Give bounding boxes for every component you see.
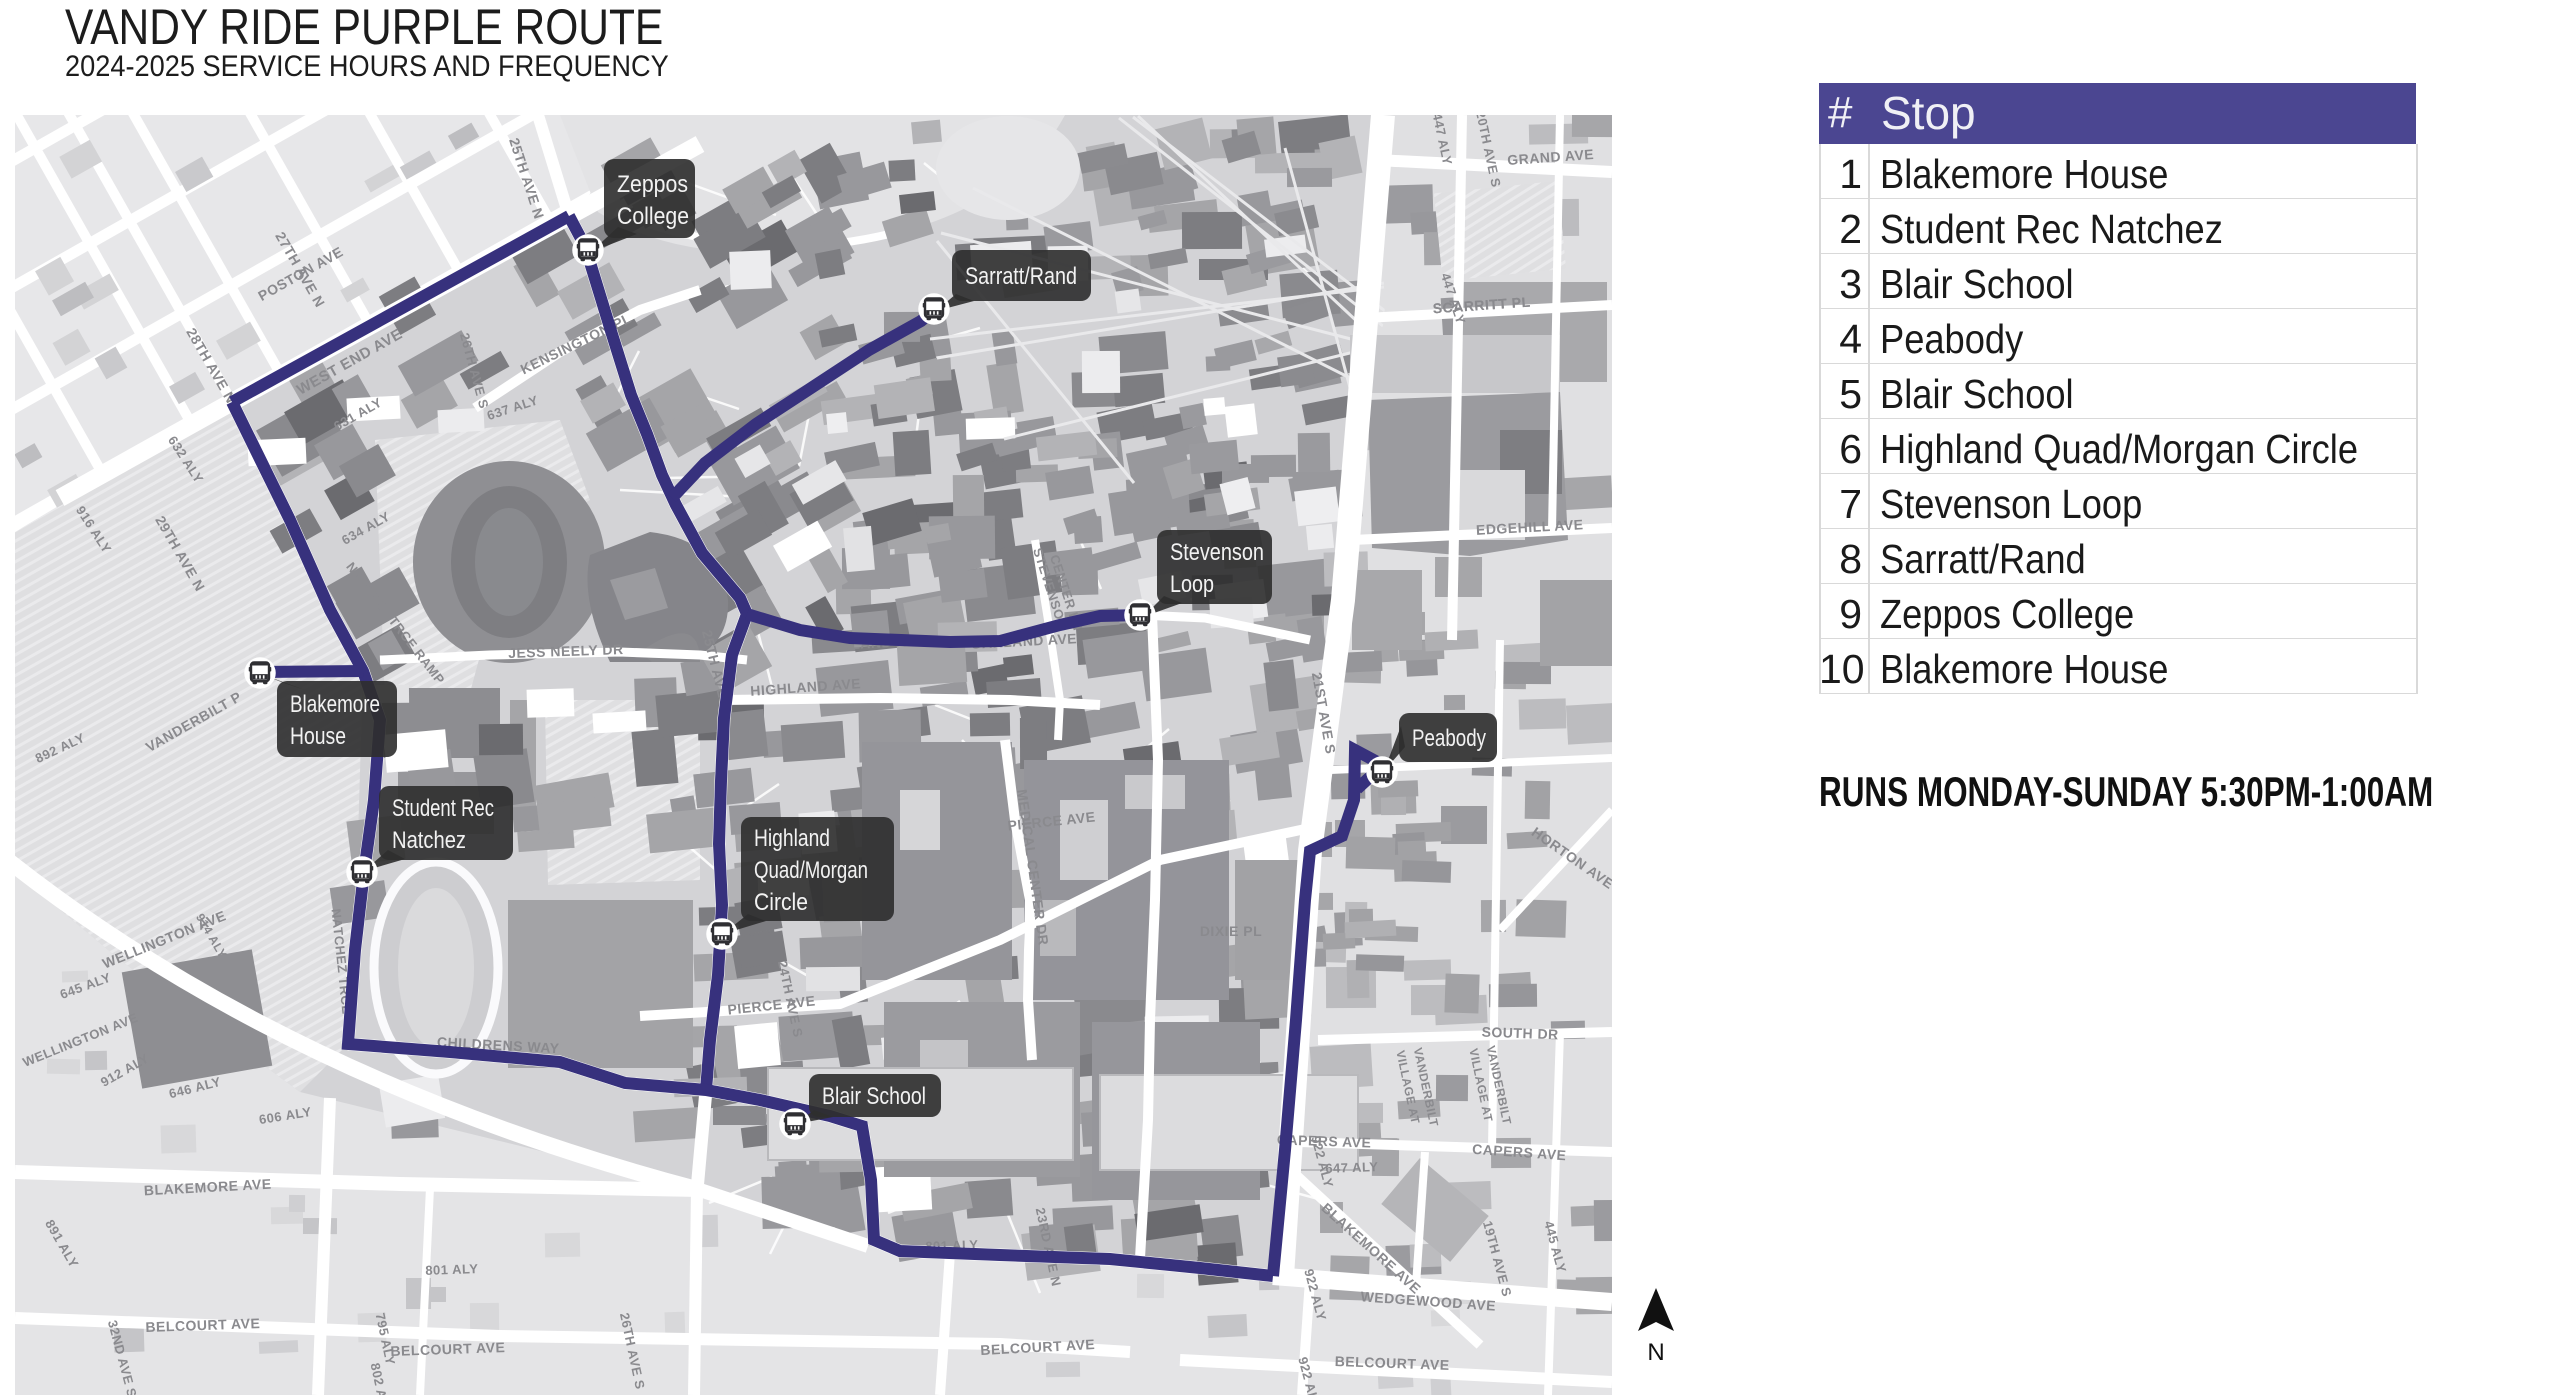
svg-text:Student Rec: Student Rec xyxy=(392,795,494,822)
svg-text:Stevenson: Stevenson xyxy=(1170,539,1264,566)
svg-text:Peabody: Peabody xyxy=(1412,725,1486,752)
svg-text:Zeppos: Zeppos xyxy=(617,171,688,198)
svg-text:Blair School: Blair School xyxy=(822,1083,926,1110)
svg-text:Blakemore: Blakemore xyxy=(290,691,380,718)
svg-text:Quad/Morgan: Quad/Morgan xyxy=(754,857,868,884)
svg-text:Circle: Circle xyxy=(754,889,808,916)
svg-text:801 ALY: 801 ALY xyxy=(425,1261,479,1278)
svg-text:Sarratt/Rand: Sarratt/Rand xyxy=(965,263,1077,290)
svg-text:Highland: Highland xyxy=(754,825,830,852)
svg-text:College: College xyxy=(617,203,689,230)
svg-text:Loop: Loop xyxy=(1170,571,1214,598)
svg-text:SOUTH DR: SOUTH DR xyxy=(1481,1024,1559,1043)
svg-text:N: N xyxy=(1647,1339,1664,1366)
svg-text:Natchez: Natchez xyxy=(392,827,466,854)
svg-text:DIXIE PL: DIXIE PL xyxy=(1200,923,1262,939)
svg-text:House: House xyxy=(290,723,346,750)
